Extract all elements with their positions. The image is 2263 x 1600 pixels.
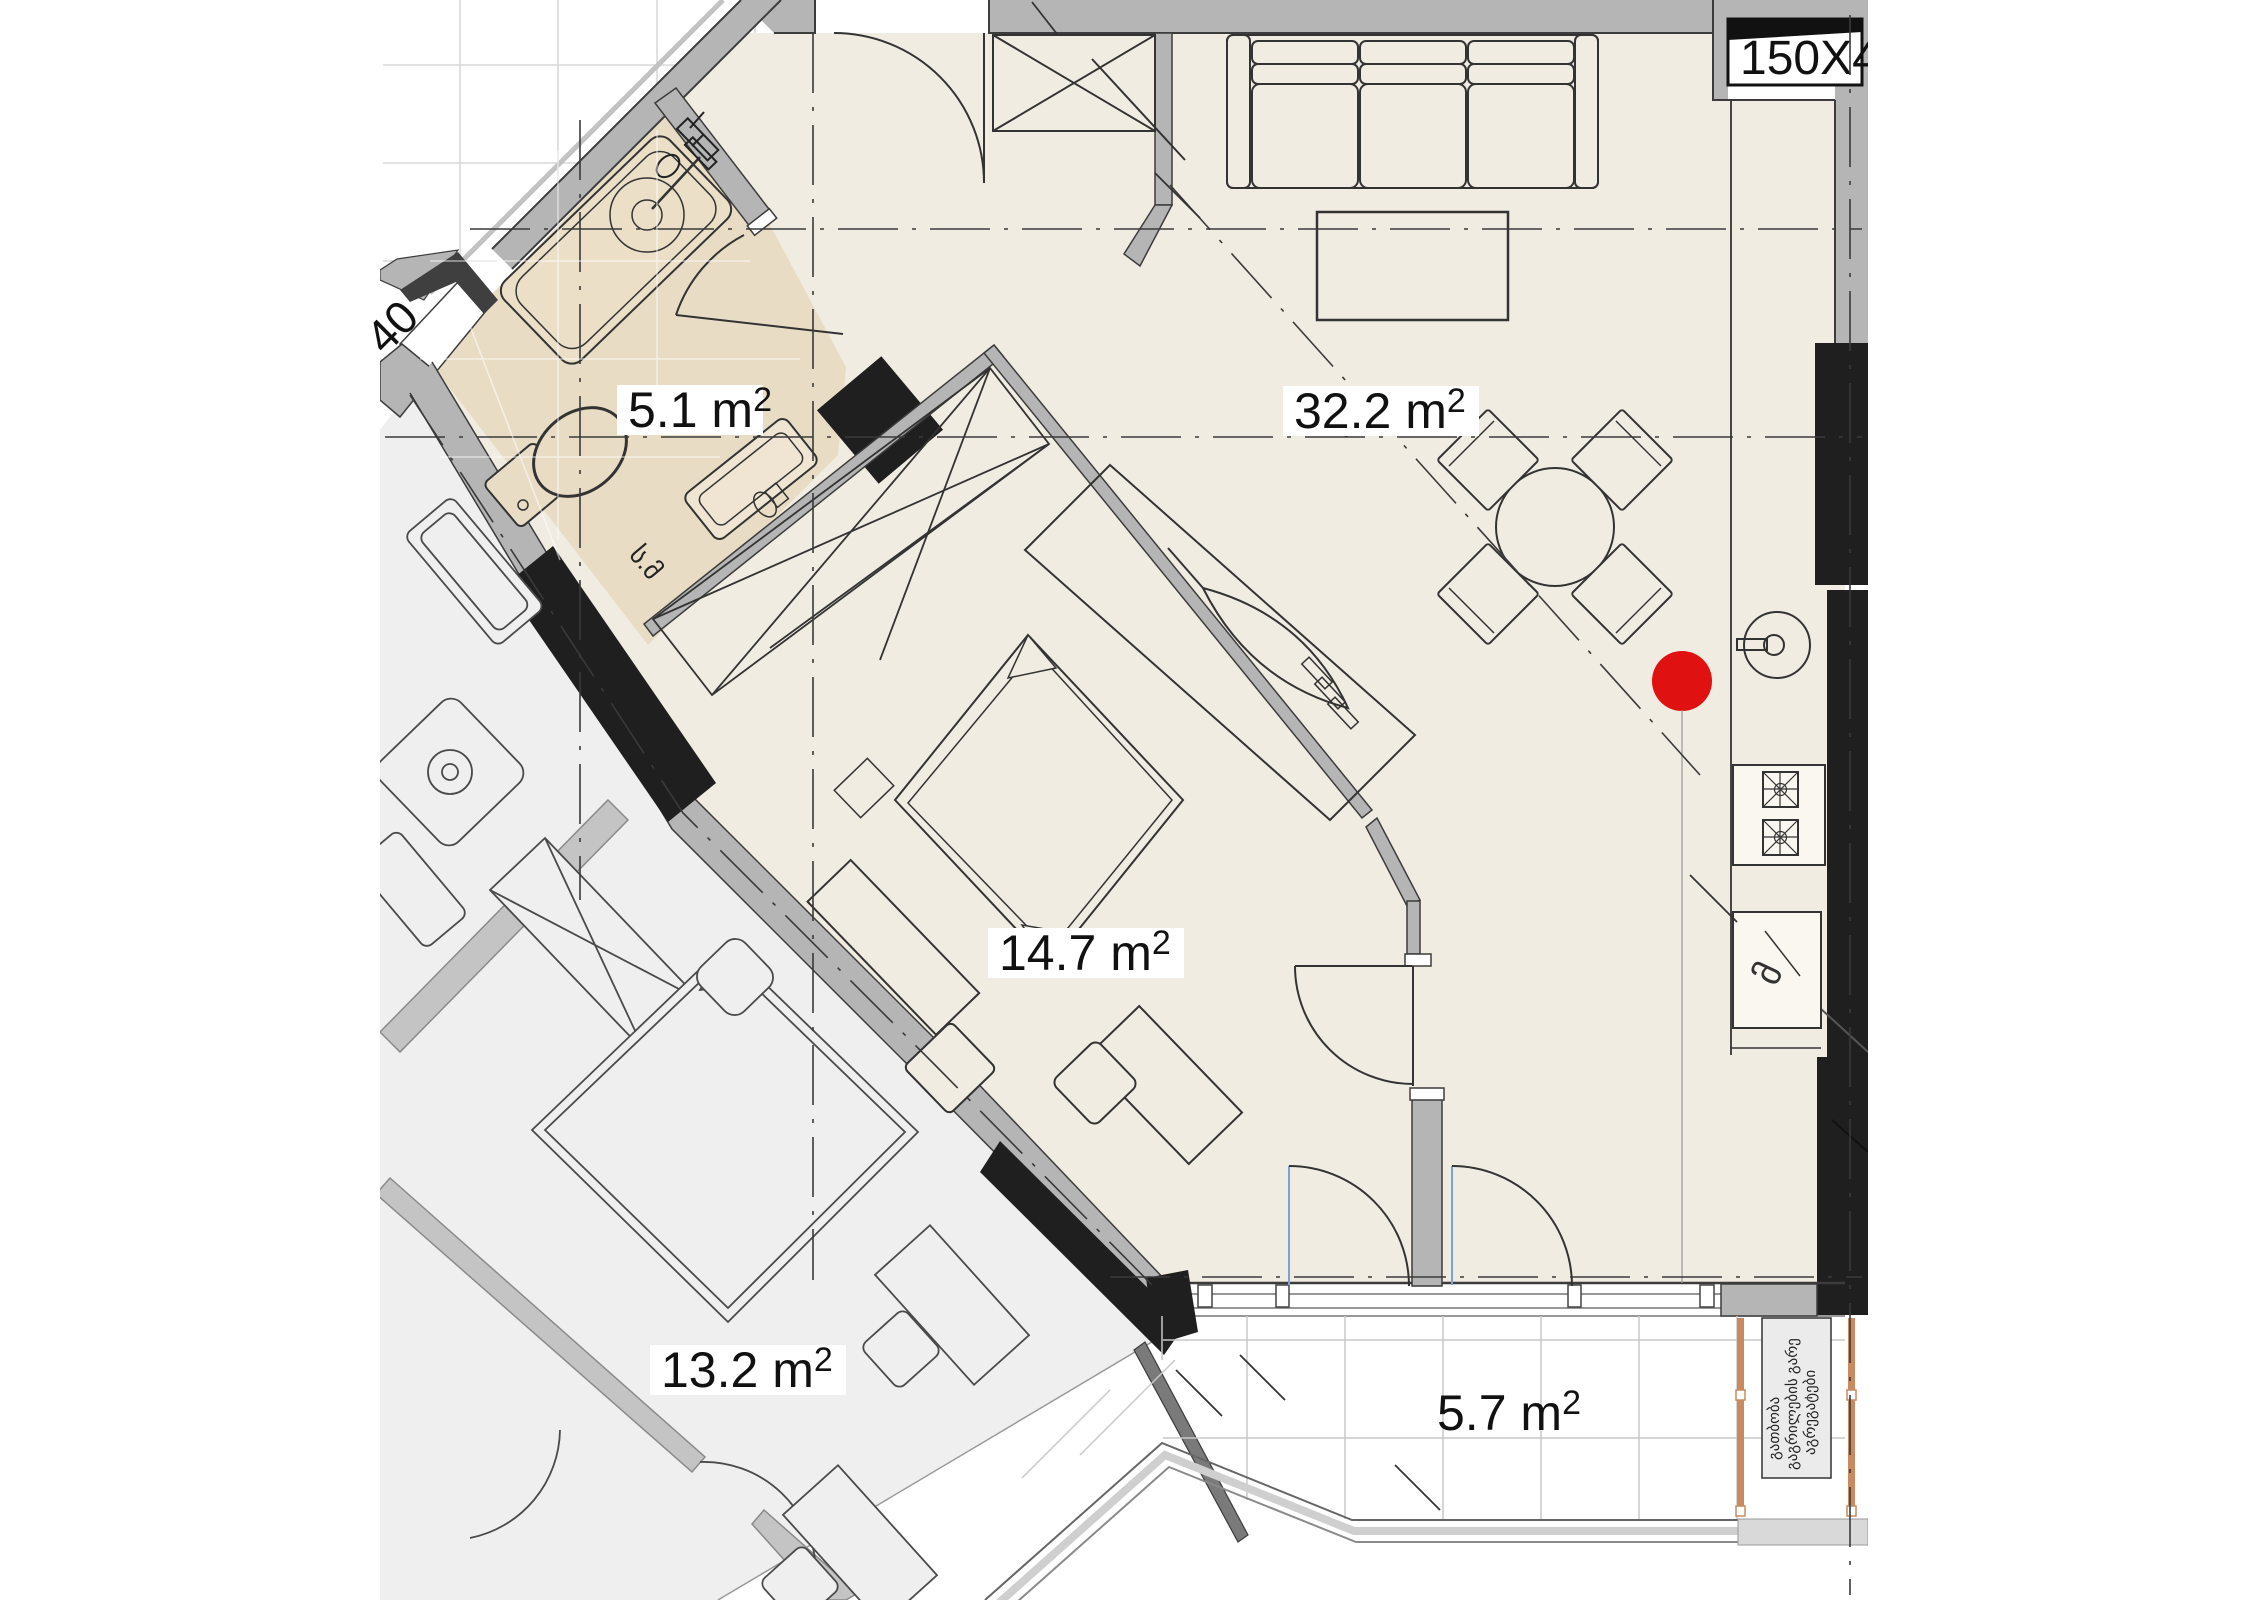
svg-text:აგრეგატები: აგრეგატები bbox=[1802, 1370, 1819, 1455]
svg-text:5.1 m2: 5.1 m2 bbox=[628, 381, 772, 438]
svg-text:5.7 m2: 5.7 m2 bbox=[1437, 1384, 1581, 1441]
svg-text:32.2 m2: 32.2 m2 bbox=[1294, 382, 1466, 439]
svg-text:14.7 m2: 14.7 m2 bbox=[999, 924, 1171, 981]
svg-text:გაგრილების გარე: გაგრილების გარე bbox=[1784, 1338, 1801, 1470]
svg-text:13.2 m2: 13.2 m2 bbox=[661, 1341, 833, 1398]
svg-text:გათბობა: გათბობა bbox=[1766, 1397, 1783, 1460]
